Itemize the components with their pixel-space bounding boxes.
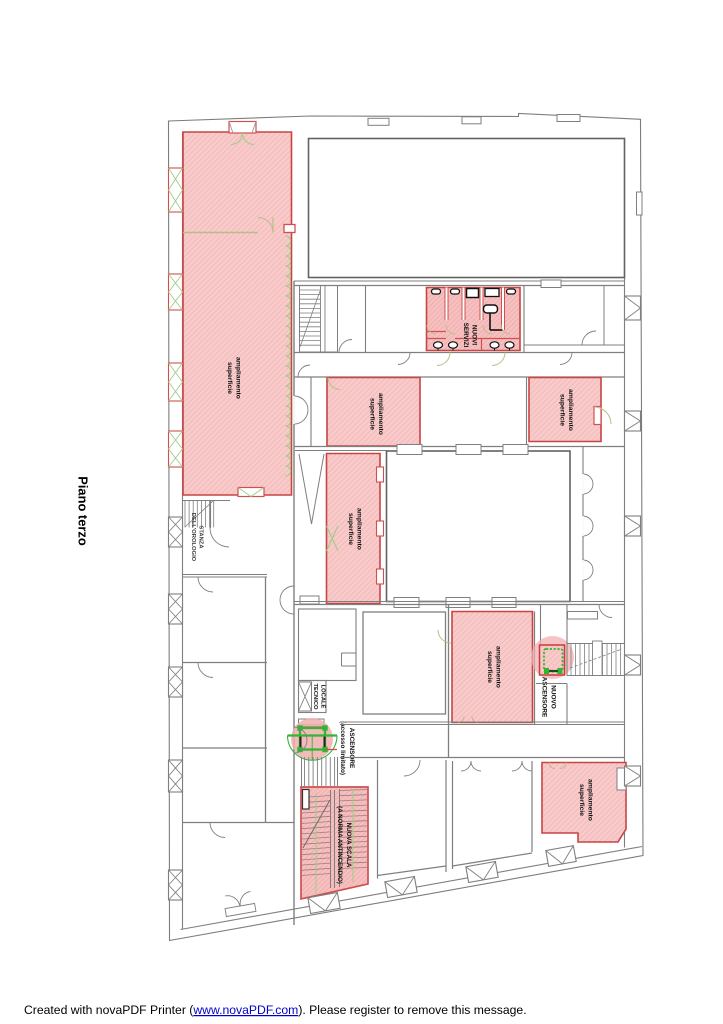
svg-text:DELL'OROLOGIO: DELL'OROLOGIO [190,513,196,562]
svg-text:NUOVA SCALA: NUOVA SCALA [345,823,352,868]
svg-text:superficie: superficie [347,513,354,545]
svg-text:(accesso limitato): (accesso limitato) [339,721,346,775]
svg-text:NUOVO: NUOVO [550,685,557,708]
svg-text:ASCENSORE: ASCENSORE [348,728,355,769]
svg-text:TECNICO: TECNICO [312,683,318,710]
svg-text:superficie: superficie [368,398,375,430]
svg-text:NUOVI: NUOVI [471,325,478,345]
svg-text:ampliamento: ampliamento [587,779,594,821]
svg-text:LOCALE: LOCALE [320,685,326,709]
svg-text:superficie: superficie [226,362,233,394]
svg-text:superficie: superficie [558,394,565,426]
svg-text:ASCENSORE: ASCENSORE [541,677,548,718]
svg-text:(A NORMA ANTINCENDIO): (A NORMA ANTINCENDIO) [336,806,343,884]
svg-text:superficie: superficie [486,651,493,683]
svg-text:STANZA: STANZA [198,525,204,549]
svg-text:Created with novaPDF Printer (: Created with novaPDF Printer (www.novaPD… [24,1003,527,1017]
svg-text:ampliamento: ampliamento [377,393,384,435]
svg-text:ampliamento: ampliamento [567,389,574,431]
svg-text:Piano terzo: Piano terzo [76,476,91,546]
svg-text:ampliamento: ampliamento [356,508,363,550]
svg-text:superficie: superficie [578,784,585,816]
svg-text:SERVIZI: SERVIZI [462,323,469,348]
svg-text:ampliamento: ampliamento [235,357,242,399]
svg-text:ampliamento: ampliamento [495,646,502,688]
